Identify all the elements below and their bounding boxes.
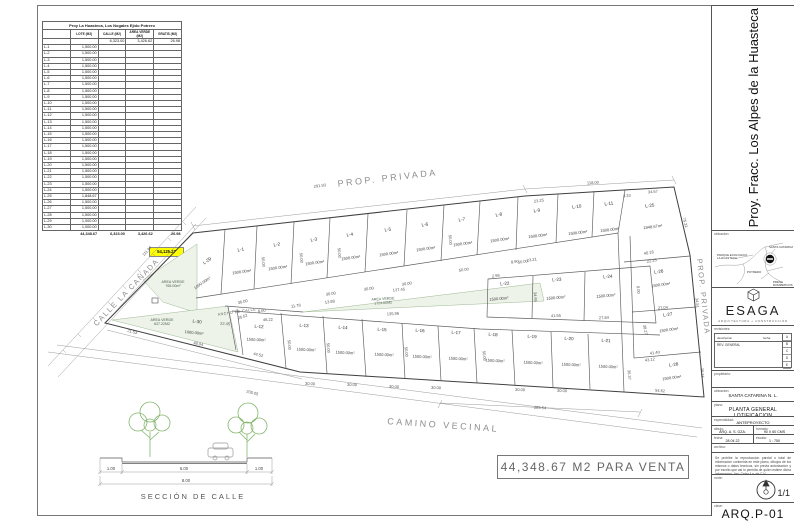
site-plan: PROP. PRIVADA PROP. PRIVADA CAMINO VECIN… bbox=[0, 0, 800, 521]
rev-letter: D bbox=[783, 355, 791, 362]
dimension-label: 29.15 bbox=[700, 368, 706, 379]
dimension-label: 50.00 bbox=[287, 340, 293, 351]
map-labels-layer: SANTA CATARINAPARQUE ECOLOGICOLA HUASTEC… bbox=[717, 245, 793, 287]
lot-label: L-23 bbox=[552, 277, 562, 283]
lot-label: L-18 bbox=[488, 332, 498, 337]
titleblock-especialidad: especialidad: ANTEPROYECTO bbox=[711, 416, 794, 425]
dimension-label: 30.00 bbox=[325, 290, 336, 297]
lot-label: L-30 bbox=[192, 319, 202, 325]
dimension-label: 27.04 bbox=[658, 305, 669, 311]
dimension-label: 50.00 bbox=[404, 347, 410, 358]
especialidad-label: especialidad: bbox=[714, 418, 734, 422]
fecha-label: fecha: bbox=[714, 436, 723, 440]
lot-label: L-19 bbox=[527, 334, 537, 339]
esaga-logo-text: ESAGA bbox=[712, 303, 794, 318]
dimension-label: 30.00 bbox=[389, 384, 400, 390]
dimension-label: 50.00 bbox=[482, 351, 488, 362]
dimension-label: 50.00 bbox=[261, 257, 267, 268]
dimension-label: 50.00 bbox=[517, 258, 528, 264]
lot-label: L-11 bbox=[604, 200, 614, 206]
lot-label: L-27 bbox=[663, 311, 673, 317]
esaga-tagline: ARQUITECTURA + CONSTRUCCION bbox=[712, 319, 794, 323]
lot-label: L-1 bbox=[237, 247, 245, 253]
lot-label: L-28 bbox=[669, 361, 679, 367]
lot-label: L-9 bbox=[533, 208, 541, 214]
lot-label: L-21 bbox=[601, 338, 611, 343]
green-area-label: AREA VERDE1724.00M2 bbox=[371, 296, 395, 305]
camino-vecinal-label: CAMINO VECINAL bbox=[387, 416, 499, 434]
dibujo-label: dibujo: bbox=[714, 427, 724, 431]
lot-label: L-6 bbox=[421, 222, 429, 228]
lot-label: L-29 bbox=[202, 256, 213, 266]
plano-label: plano: bbox=[714, 403, 723, 407]
ubicacion-label: ubicacion: bbox=[714, 389, 729, 393]
lot-area-label: 1500.00m² bbox=[568, 229, 588, 236]
revisions-header: descripcion fecha bbox=[715, 334, 791, 342]
lot-area-label: 1500.00m² bbox=[374, 352, 394, 358]
dimension-label: 13.88 bbox=[324, 298, 335, 304]
lot-area-label: 1500.00m² bbox=[485, 358, 505, 364]
titleblock-clave: clave: ARQ.P-01 bbox=[711, 502, 794, 516]
lot-label: L-13 bbox=[299, 323, 309, 328]
revisions-table: descripcion fecha REV. GENERAL ABCDE bbox=[714, 333, 792, 368]
dimension-label: 40.18 bbox=[643, 249, 654, 256]
dimension-label: 34.95 bbox=[533, 292, 539, 303]
titleblock-archivo: archivo: bbox=[711, 443, 794, 452]
dimension-label: 30.00 bbox=[431, 385, 442, 391]
dimension-label: 41.55 bbox=[551, 313, 562, 319]
disclaimer-text: Se prohibe la reproduccion parcial o tot… bbox=[712, 453, 794, 477]
formato-label: formato: bbox=[756, 427, 768, 431]
dimension-label: 23.21 bbox=[526, 256, 537, 262]
lot-label: L-17 bbox=[451, 330, 461, 335]
titleblock-location-map: ubicacion: SANTA CATARINAPARQUE ECOLOGIC… bbox=[711, 230, 794, 287]
lot-label: L-10 bbox=[572, 203, 582, 209]
dimension-label: 135.96 bbox=[387, 311, 400, 317]
prop-privada-right-label: PROP. PRIVADA bbox=[695, 258, 712, 335]
lot-area-label: 1500.00m² bbox=[341, 254, 361, 262]
map-label: SANTA CATARINA bbox=[769, 245, 793, 249]
sale-area-note: 44,348.67 M2 PARA VENTA bbox=[497, 455, 689, 479]
lot-label: L-12 bbox=[254, 324, 264, 329]
revisiones-label: revisiones: bbox=[714, 327, 730, 331]
dimension-label: 8.00 bbox=[636, 286, 642, 295]
lot-area-label: 1500.00m² bbox=[305, 259, 325, 267]
rev-letter: E bbox=[783, 362, 791, 369]
lot-label: L-26 bbox=[654, 268, 664, 274]
map-label: POTRERO bbox=[747, 270, 762, 274]
dimension-label: 50.00 bbox=[326, 343, 332, 354]
lot-area-label: 1500.00m² bbox=[232, 268, 252, 276]
dimension-label: 30.00 bbox=[515, 387, 526, 393]
tree-icon bbox=[129, 402, 170, 457]
dimension-label: 43.12 bbox=[645, 356, 656, 362]
car-icon bbox=[208, 443, 233, 460]
titleblock-north: norte: 1/1 bbox=[711, 474, 794, 502]
dimension-label: 50.00 bbox=[337, 248, 343, 259]
dimension-label: 2.98 bbox=[492, 272, 501, 278]
lot-area-label: 1500.00m² bbox=[561, 362, 581, 368]
lot-label: L-7 bbox=[458, 217, 466, 223]
dimension-label: 291.93 bbox=[313, 182, 327, 189]
map-label: PRESAROMPEPICOS bbox=[773, 280, 793, 287]
rev-letters-column: ABCDE bbox=[782, 334, 791, 367]
lot-label: L-8 bbox=[495, 212, 503, 218]
dimension-label: 30.00 bbox=[557, 388, 568, 394]
lot-area-label: 1500.00m² bbox=[412, 354, 432, 360]
lot-area-label: 1500.00m² bbox=[379, 250, 399, 258]
dimension-label: 30.00 bbox=[363, 285, 374, 292]
dimension-label: 50.00 bbox=[458, 266, 469, 272]
dimension-label: 50.00 bbox=[448, 235, 454, 246]
titleblock-logo: ESAGA ARQUITECTURA + CONSTRUCCION bbox=[711, 287, 794, 325]
rev-row-general: REV. GENERAL bbox=[717, 343, 740, 347]
rev-letter: A bbox=[783, 334, 791, 341]
lot-area-label: 1500.00m² bbox=[659, 326, 679, 334]
street-section: 1.00 6.00 1.00 8.00 SECCIÓN DE CALLE bbox=[98, 402, 274, 501]
lot-area-label: 1500.00m² bbox=[651, 281, 671, 289]
lot-label: L-25 bbox=[645, 202, 655, 208]
titleblock-fecha-escala: fecha: 28 04 22 escala: 1 : 750 bbox=[711, 434, 794, 443]
lot-area-label: 1500.00m² bbox=[296, 347, 316, 353]
sheet-number: 1/1 bbox=[777, 488, 790, 498]
rev-letter: C bbox=[783, 348, 791, 355]
rev-col-descripcion: descripcion bbox=[717, 336, 732, 340]
lot-label: L-4 bbox=[346, 232, 354, 238]
dimension-label: 41.40 bbox=[650, 349, 661, 355]
lot-label: L-22 bbox=[500, 281, 510, 287]
dimension-label: 3.33 bbox=[623, 193, 632, 199]
lot-area-label: 1500.00m² bbox=[596, 292, 616, 299]
dimension-label: 46.22 bbox=[263, 317, 274, 323]
titleblock-propietario: propietario: bbox=[711, 370, 794, 387]
lot-area-label: 1500.00m² bbox=[453, 240, 473, 248]
dimension-label: 205.05 bbox=[246, 389, 260, 397]
dimension-label: 8.00 bbox=[258, 307, 267, 313]
lot-area-label: 1500.00m² bbox=[335, 350, 355, 356]
rev-letter: B bbox=[783, 341, 791, 348]
lot-label: L-14 bbox=[338, 325, 348, 330]
lot-label: L-3 bbox=[310, 237, 318, 243]
titleblock-plano: plano: PLANTA GENERAL LOTIFICACION bbox=[711, 401, 794, 416]
dimension-label: 50.00 bbox=[299, 253, 305, 264]
dimension-label: 30.00 bbox=[305, 381, 316, 387]
section-dim-total: 8.00 bbox=[182, 478, 191, 483]
lot-area-label: 1500.00m² bbox=[528, 232, 548, 239]
dimension-label: 23.25 bbox=[534, 197, 545, 203]
dimension-label: 22.25 bbox=[646, 257, 657, 264]
lot-label: L-24 bbox=[603, 274, 613, 280]
lot-area-label: 1500.00m² bbox=[600, 226, 620, 233]
lot-area-label: 1500.00m² bbox=[416, 245, 436, 253]
prop-privada-top-label: PROP. PRIVADA bbox=[337, 167, 438, 188]
titleblock-ubicacion: ubicacion: SANTA CATARINA N. L. bbox=[711, 387, 794, 401]
titleblock-revisions: revisiones: descripcion fecha REV. GENER… bbox=[711, 325, 794, 370]
section-dim-left: 1.00 bbox=[107, 466, 116, 471]
lot-area-label: 1500.00m² bbox=[268, 264, 288, 272]
lot-label: L-2 bbox=[273, 242, 281, 248]
lot-label: L-16 bbox=[415, 328, 425, 333]
esaga-cube-icon bbox=[712, 288, 795, 302]
titleblock-dibujo-formato: dibujo: ARQ. A. S. GZA. formato: 90 X 60… bbox=[711, 425, 794, 434]
dimension-label: 285.54 bbox=[534, 405, 547, 411]
tree-icon bbox=[228, 403, 267, 457]
propietario-label: propietario: bbox=[714, 372, 731, 376]
dimension-label: 44.52 bbox=[253, 351, 265, 358]
dimension-label: 48.04 bbox=[193, 340, 205, 347]
escala-label: escala: bbox=[756, 436, 767, 440]
section-dim-right: 1.00 bbox=[255, 466, 264, 471]
lot-label: L-15 bbox=[377, 327, 387, 332]
dimension-label: 27.84 bbox=[599, 315, 610, 321]
location-map: SANTA CATARINAPARQUE ECOLOGICOLA HUASTEC… bbox=[713, 237, 793, 287]
dimension-label: 30.00 bbox=[401, 280, 412, 287]
titleblock-project: Proy. Fracc. Los Alpes de la Huasteca bbox=[711, 5, 794, 230]
lot-area-label: 1500.00m² bbox=[246, 337, 266, 343]
lot-area-label: 1848.67m² bbox=[643, 223, 663, 230]
lot-label: L-20 bbox=[564, 336, 574, 341]
lot-area-label: 1500.00m² bbox=[598, 364, 618, 370]
dimension-label: 118.00 bbox=[587, 180, 600, 186]
clave-label: clave: bbox=[714, 504, 723, 508]
dimension-label: 36.37 bbox=[627, 370, 633, 381]
section-title: SECCIÓN DE CALLE bbox=[141, 492, 246, 501]
dimension-label: 30.00 bbox=[347, 382, 358, 388]
drawing-sheet: Proy La Huasteca, Los Nogales Ejido Potr… bbox=[0, 0, 800, 521]
lot-lines bbox=[152, 190, 701, 392]
lot-area-label: 1500.00m² bbox=[490, 236, 510, 244]
lot-area-label: 1500.00m² bbox=[546, 294, 566, 301]
dimension-label: 137.45 bbox=[392, 286, 405, 292]
project-title: Proy. Fracc. Los Alpes de la Huasteca bbox=[746, 8, 761, 227]
ubicacion-map-label: ubicacion: bbox=[714, 232, 729, 236]
dimension-label: 36.00 bbox=[237, 298, 249, 305]
drawing-code: ARQ.P-01 bbox=[712, 507, 794, 521]
lot-area-label: 1500.00m² bbox=[523, 360, 543, 366]
lot-label: L-5 bbox=[384, 227, 392, 233]
dimension-label: 11.78 bbox=[291, 302, 302, 308]
titleblock-disclaimer: Se prohibe la reproduccion parcial o tot… bbox=[711, 452, 794, 474]
dimension-label: 21.53 bbox=[127, 328, 139, 335]
rev-col-fecha: fecha bbox=[763, 336, 770, 340]
lot-area-label: 1500.00m² bbox=[662, 374, 682, 382]
lot-area-label: 1500.00m² bbox=[448, 356, 468, 362]
archivo-label: archivo: bbox=[714, 445, 726, 449]
map-label: PARQUE ECOLOGICOLA HUASTECA bbox=[717, 253, 748, 260]
ubicacion-value: SANTA CATARINA N. L. bbox=[712, 393, 794, 398]
dimension-label: 54.62 bbox=[655, 388, 666, 394]
dimension-label: 22.45 bbox=[220, 321, 231, 327]
section-dim-center: 6.00 bbox=[180, 466, 189, 471]
dimension-label: 34.57 bbox=[648, 189, 659, 195]
